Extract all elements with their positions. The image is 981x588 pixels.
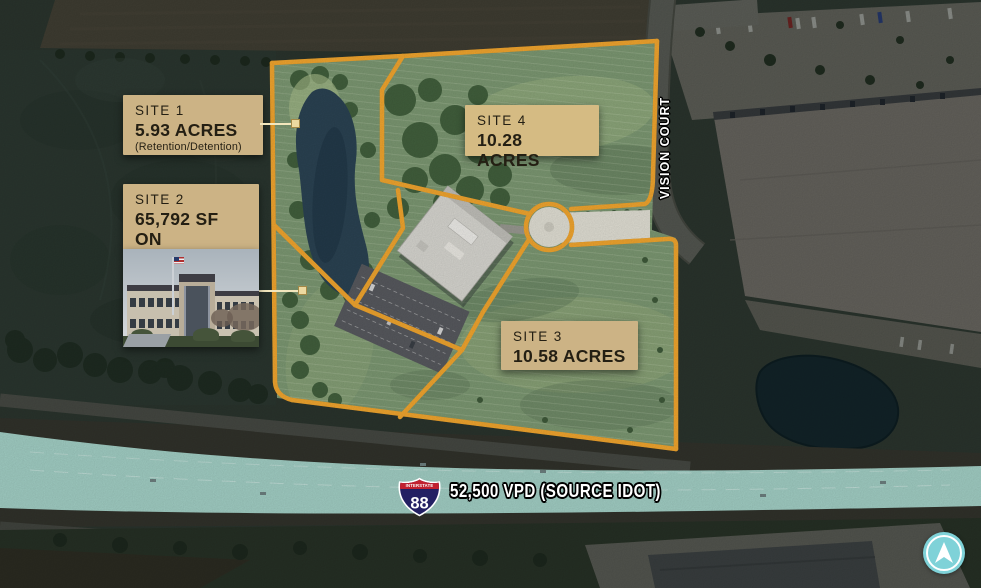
site-1-connector-line [260,123,293,125]
site-4-acres: 10.28 ACRES [477,130,587,170]
site-2-size-line1: 65,792 SF ON [135,209,247,249]
interstate-88-shield: INTERSTATE 88 [398,477,441,517]
site-1-map-marker [291,119,300,128]
vision-court-road-label: VISION COURT [658,92,672,204]
flagpole-icon [172,257,174,315]
site-3-label-card: SITE 3 10.58 ACRES [501,321,638,370]
site-1-label-card: SITE 1 5.93 ACRES (Retention/Detention) [123,95,263,155]
aerial-site-map: SITE 1 5.93 ACRES (Retention/Detention) … [0,0,981,588]
site-3-acres: 10.58 ACRES [513,346,626,366]
site-2-label-card: SITE 2 65,792 SF ON 9.24 ACRES [123,184,259,250]
north-arrow-icon [933,541,955,565]
us-flag-icon [174,257,184,264]
site-1-title: SITE 1 [135,103,251,118]
bare-tree-icon [211,309,233,327]
site-1-note: (Retention/Detention) [135,141,251,153]
shield-number: 88 [410,495,428,513]
site-2-title: SITE 2 [135,192,247,207]
north-arrow-compass [923,532,965,574]
site-3-title: SITE 3 [513,329,626,344]
site-2-map-marker [298,286,307,295]
site-2-connector-line [257,290,301,292]
photo-walkway [123,334,171,347]
site-2-building-photo [123,249,259,347]
site-1-acres: 5.93 ACRES [135,120,251,140]
site-4-title: SITE 4 [477,113,587,128]
shield-interstate-text: INTERSTATE [406,483,434,488]
traffic-count-banner: 52,500 VPD (SOURCE IDOT) [450,481,661,502]
site-4-label-card: SITE 4 10.28 ACRES [465,105,599,156]
